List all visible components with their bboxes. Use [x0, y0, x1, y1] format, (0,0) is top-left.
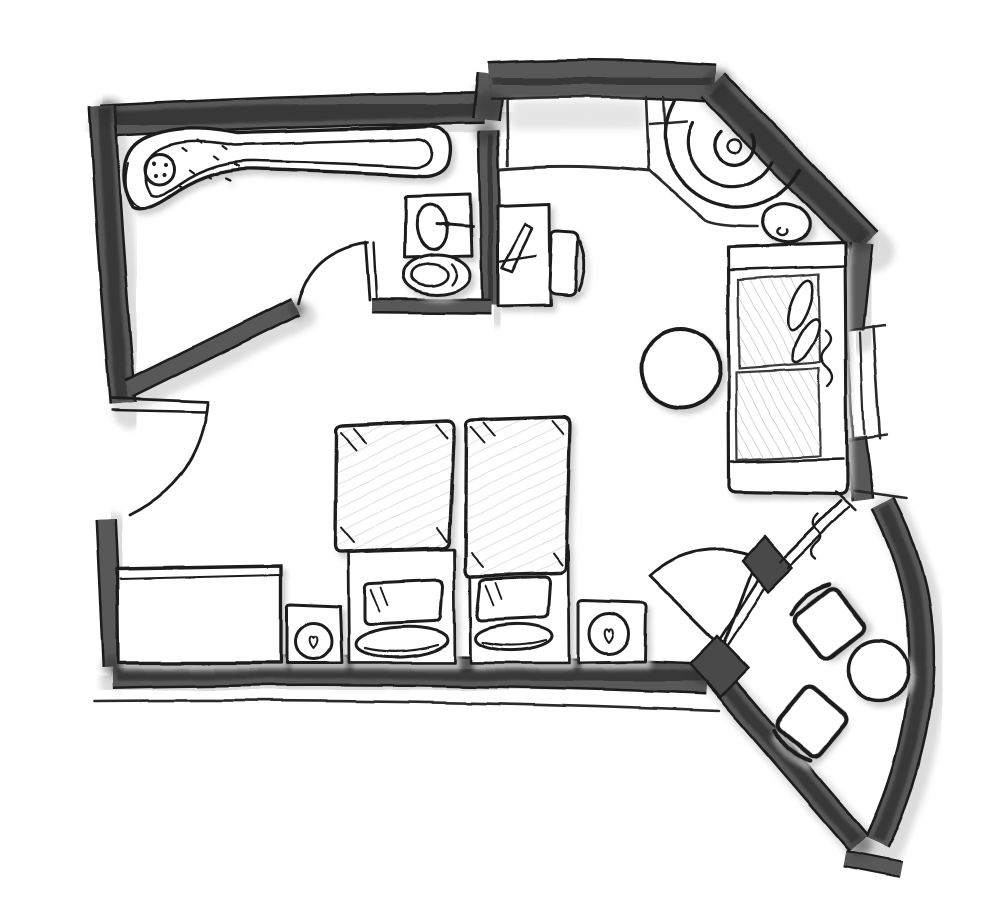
- niche-shade: [512, 101, 644, 129]
- bed-right: [465, 417, 570, 663]
- duvet: [465, 417, 570, 576]
- wall-bathroom-diagonal: [129, 307, 295, 389]
- wall-bottom: [113, 671, 706, 679]
- ink-blob: [853, 233, 871, 251]
- ink-blob: [474, 91, 504, 121]
- wall-top-right: [489, 78, 715, 83]
- pillow: [477, 577, 550, 620]
- door-swing-fan: [650, 549, 757, 648]
- ink-blob: [850, 834, 872, 856]
- stool: [642, 329, 720, 407]
- nightstand-right: [578, 601, 646, 663]
- ink-blob: [97, 101, 119, 123]
- ink-blob: [705, 69, 731, 95]
- bathroom: [124, 126, 473, 304]
- door-jamb-block: [742, 536, 792, 592]
- balcony: [650, 492, 908, 767]
- duvet: [335, 421, 454, 552]
- floor-plan-sketch: [0, 0, 1000, 900]
- wall-bathroom-vertical: [488, 131, 492, 305]
- bathtub: [124, 126, 450, 209]
- wardrobe: [728, 243, 847, 494]
- bathroom-door: [298, 242, 377, 304]
- wall-right-upper: [852, 243, 861, 329]
- toilet-bathroom: [404, 255, 470, 295]
- wall-diagonal-se: [708, 667, 859, 843]
- wall-top-left: [101, 108, 484, 121]
- ink-blob: [288, 301, 304, 317]
- faucet-icon: [444, 222, 450, 228]
- wall-left-lower: [106, 519, 113, 667]
- shower-drain-icon: [728, 139, 742, 153]
- floor-plan-canvas: [0, 0, 1000, 900]
- dresser: [117, 566, 281, 663]
- balcony-table: [848, 641, 908, 701]
- door-swing-arc: [298, 242, 368, 304]
- desk: [498, 204, 551, 306]
- ink-blob: [475, 122, 497, 144]
- wall-bathroom-south: [372, 306, 491, 307]
- bed-left: [335, 421, 455, 663]
- desk-chair: [550, 232, 585, 295]
- nightstand-left: [287, 604, 342, 663]
- washbasin: [405, 194, 473, 258]
